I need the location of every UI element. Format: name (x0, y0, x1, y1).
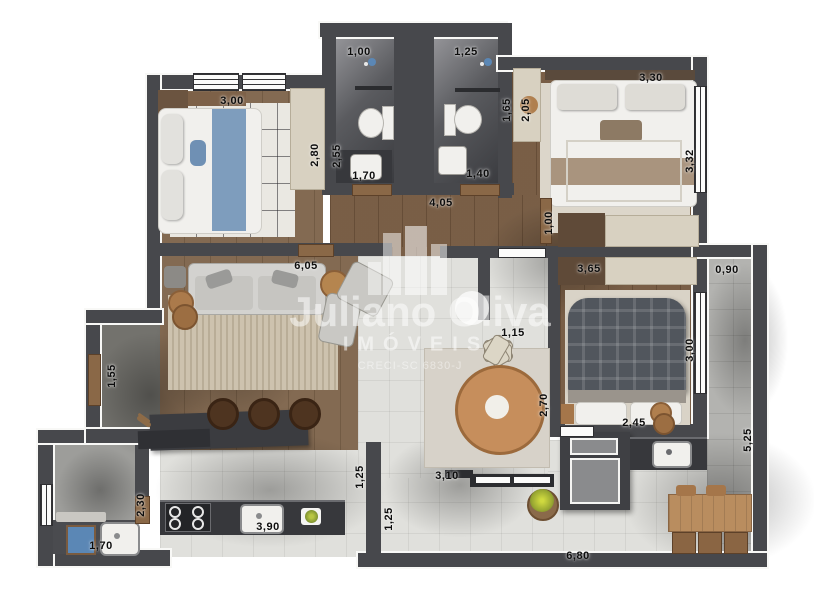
shower-partition (455, 88, 500, 92)
balcony-door (560, 426, 594, 437)
wall (753, 245, 767, 567)
dim-entry-width: 1,55 (106, 364, 118, 387)
dim-laundry-depth: 2,30 (135, 493, 147, 516)
burner (192, 506, 204, 518)
window (193, 73, 239, 91)
suite-accent-pillow (600, 120, 642, 142)
dim-kitchen-counter: 3,90 (256, 521, 279, 533)
window (40, 484, 53, 526)
sliding-door-pane (476, 477, 510, 483)
bedroom2-stool (653, 413, 675, 435)
door-threshold (460, 184, 500, 196)
terrace-chair (672, 532, 696, 554)
dim-bathroom2-depth: 1,65 (501, 98, 513, 121)
dim-kitchen-opening: 3,10 (435, 470, 458, 482)
burner (169, 518, 181, 530)
bedroom2-closet (605, 257, 697, 285)
laundry-shelf (56, 512, 106, 522)
suite-wardrobe-wood (558, 213, 605, 247)
suite-pillow (625, 84, 685, 110)
dim-dining-depth: 2,70 (538, 393, 550, 416)
entry-door (88, 354, 101, 406)
terrace-chair (676, 485, 696, 496)
bar-stool (207, 398, 239, 430)
window (694, 86, 707, 193)
toilet-icon (454, 105, 482, 134)
burner (192, 518, 204, 530)
wall (152, 243, 392, 256)
bedroom1-accent-pillow (190, 140, 206, 166)
dim-balcony-width: 0,90 (715, 264, 738, 276)
bedroom2-nightstand (561, 404, 574, 424)
wall (366, 532, 381, 560)
dim-bedroom2-depth: 3,00 (684, 338, 696, 361)
door-threshold (298, 244, 334, 257)
dining-table-center (485, 395, 509, 419)
dim-bedroom1-width: 3,00 (220, 95, 243, 107)
dim-suite-width: 3,30 (639, 72, 662, 84)
bar-stool (248, 398, 280, 430)
shower-partition (355, 86, 392, 90)
bedroom2-door (498, 248, 546, 258)
wall (394, 30, 434, 187)
bar-stool (289, 398, 321, 430)
wall (548, 247, 707, 257)
wall (366, 442, 381, 538)
shower-icon (484, 58, 492, 66)
bathroom2-sink (438, 146, 467, 175)
wall (147, 75, 332, 89)
terrace-chair (698, 532, 722, 554)
dim-bedroom1-closet: 2,80 (309, 143, 321, 166)
suite-headboard (545, 70, 695, 80)
bedroom1-closet (290, 88, 325, 190)
door-threshold (352, 184, 392, 196)
toilet-icon (358, 108, 384, 138)
terrace-chair (706, 485, 726, 496)
terrace-chair (724, 532, 748, 554)
suite-wardrobe (605, 215, 699, 247)
island-shelf (138, 429, 211, 450)
wall (478, 258, 490, 320)
dim-balcony-length: 5,25 (742, 428, 754, 451)
dim-dining-opening: 1,15 (501, 327, 524, 339)
dim-terrace-passage: 1,25 (383, 507, 395, 530)
dim-kitchen-passage: 1,25 (354, 465, 366, 488)
side-table (164, 266, 186, 288)
plant-icon (530, 489, 554, 512)
faucet-icon (256, 513, 262, 519)
wall (358, 553, 767, 567)
dim-suite-closet: 2,05 (520, 98, 532, 121)
bedroom1-pillow (161, 114, 183, 164)
dim-terrace-length: 6,80 (566, 550, 589, 562)
dim-hall-corridor: 1,00 (543, 211, 555, 234)
plant-icon (305, 510, 318, 523)
sliding-door-pane (514, 477, 550, 483)
grill-chamber (570, 458, 620, 504)
suite-pillow (557, 84, 617, 110)
shower-icon (368, 58, 376, 66)
dim-bedroom2-closet: 3,65 (577, 263, 600, 275)
suite-bed-fold (566, 140, 682, 202)
wall (86, 310, 162, 323)
dim-hall-length: 4,05 (429, 197, 452, 209)
dim-bathroom1-width: 1,00 (347, 46, 370, 58)
dim-living-width: 6,05 (294, 260, 317, 272)
bedroom1-bed-runner (212, 109, 246, 231)
dim-bedroom2-width: 2,45 (622, 417, 645, 429)
faucet-icon (666, 449, 672, 455)
dim-laundry-width: 1,70 (89, 540, 112, 552)
floor-plan: 1,00 1,25 3,00 2,80 2,55 1,65 2,05 3,30 … (0, 0, 814, 600)
dim-bathroom2-door: 1,40 (466, 168, 489, 180)
dim-bathroom1-depth: 2,55 (331, 144, 343, 167)
dim-bathroom2-width: 1,25 (454, 46, 477, 58)
burner (169, 506, 181, 518)
terrace-sink (652, 441, 692, 468)
grill-shelf (570, 438, 618, 455)
bedroom1-pillow (161, 170, 183, 220)
terrace-table (668, 494, 752, 532)
faucet-icon (114, 533, 120, 539)
wall (135, 441, 149, 498)
window (242, 73, 286, 91)
dim-bathroom1-door: 1,70 (352, 170, 375, 182)
bedroom2-plaid-blanket (568, 298, 686, 394)
bedroom2-pillow (575, 402, 627, 425)
wood-stool (172, 304, 198, 330)
dim-suite-depth: 3,32 (684, 149, 696, 172)
